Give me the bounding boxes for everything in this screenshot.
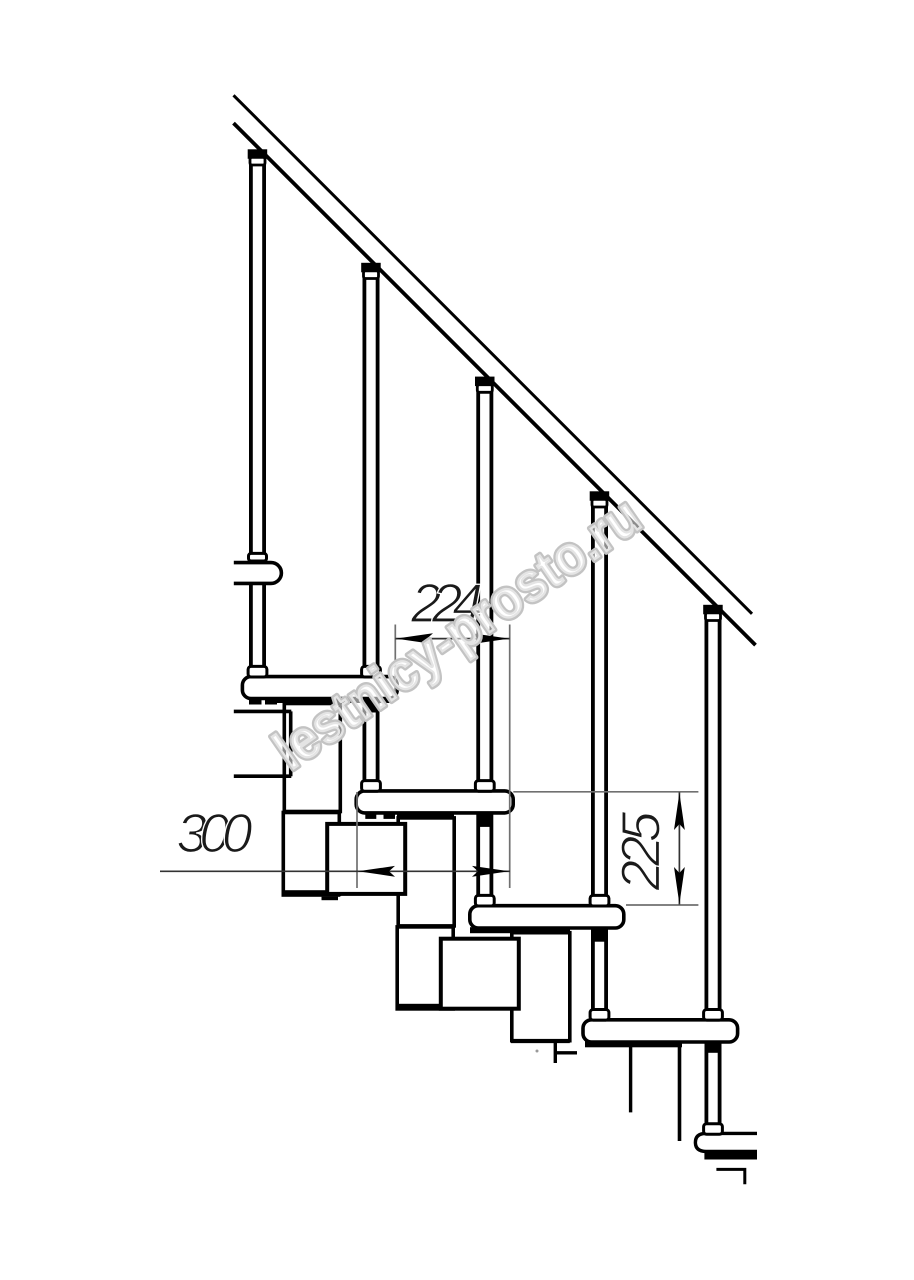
svg-text:225: 225 (610, 811, 672, 891)
svg-text:300: 300 (177, 802, 253, 864)
